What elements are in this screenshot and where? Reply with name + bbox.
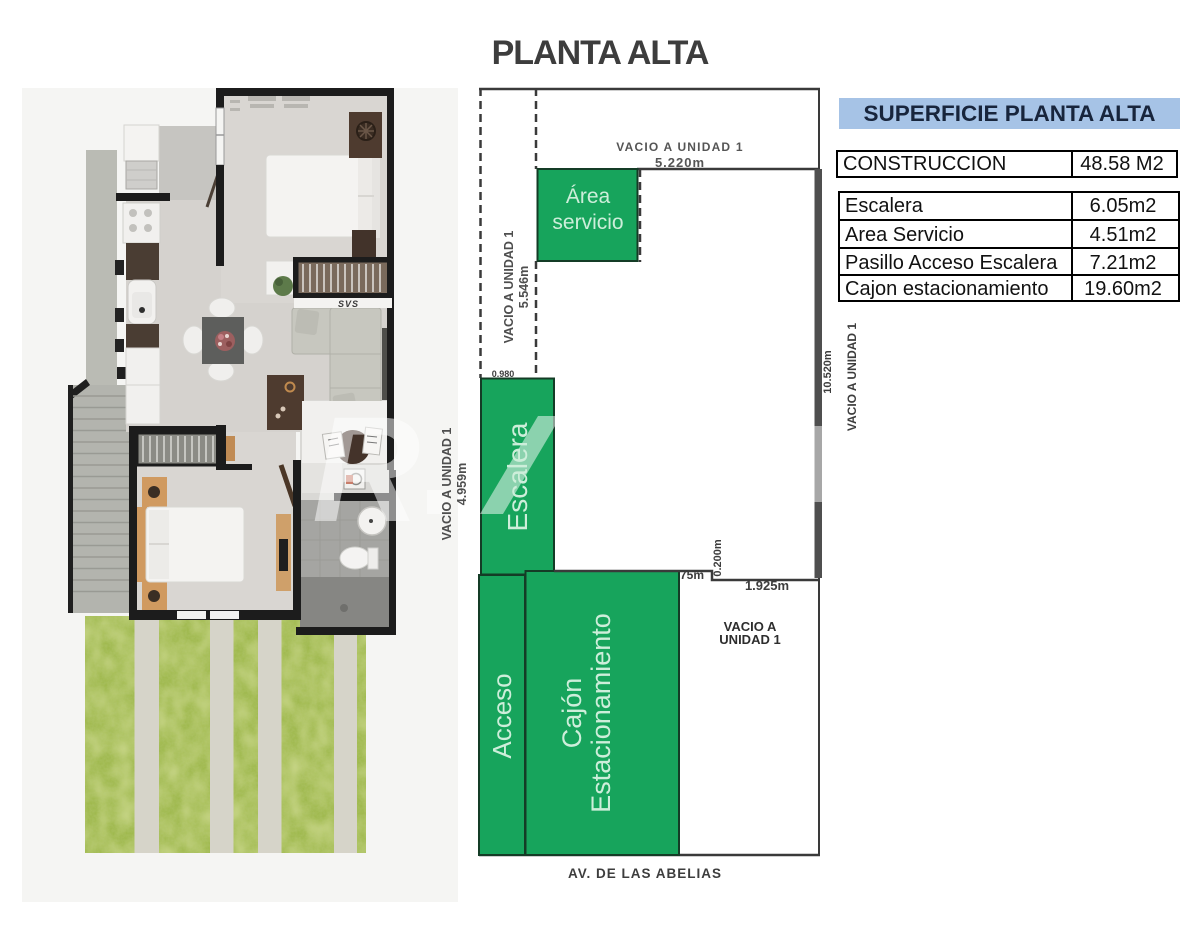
svg-text:SVS: SVS xyxy=(338,299,359,309)
svg-text:R: R xyxy=(312,385,420,553)
